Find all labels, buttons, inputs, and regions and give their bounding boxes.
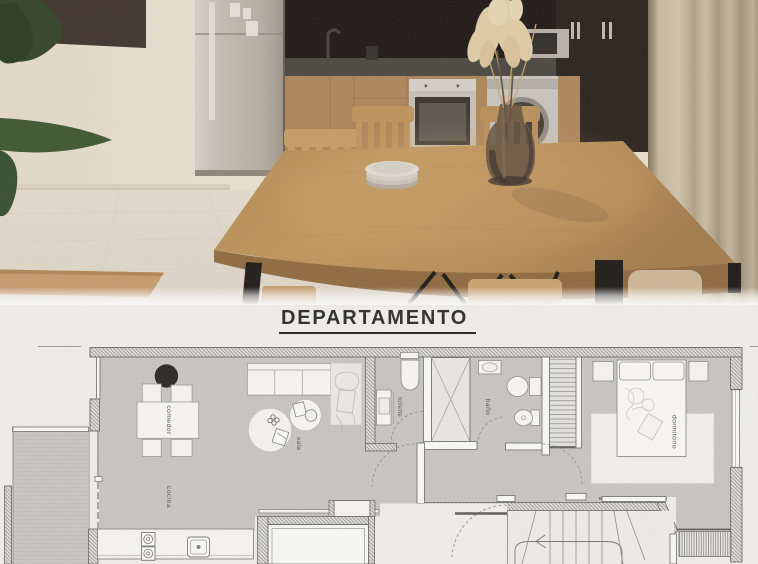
svg-text:toilette: toilette <box>396 397 402 417</box>
svg-text:♥: ♥ <box>424 84 428 90</box>
svg-text:sala: sala <box>295 437 302 450</box>
svg-text:baño: baño <box>484 399 491 416</box>
svg-text:comedor: comedor <box>165 405 172 435</box>
svg-text:♥: ♥ <box>456 84 460 90</box>
svg-text:dormitorio: dormitorio <box>671 415 678 449</box>
svg-text:cocina: cocina <box>165 486 172 508</box>
